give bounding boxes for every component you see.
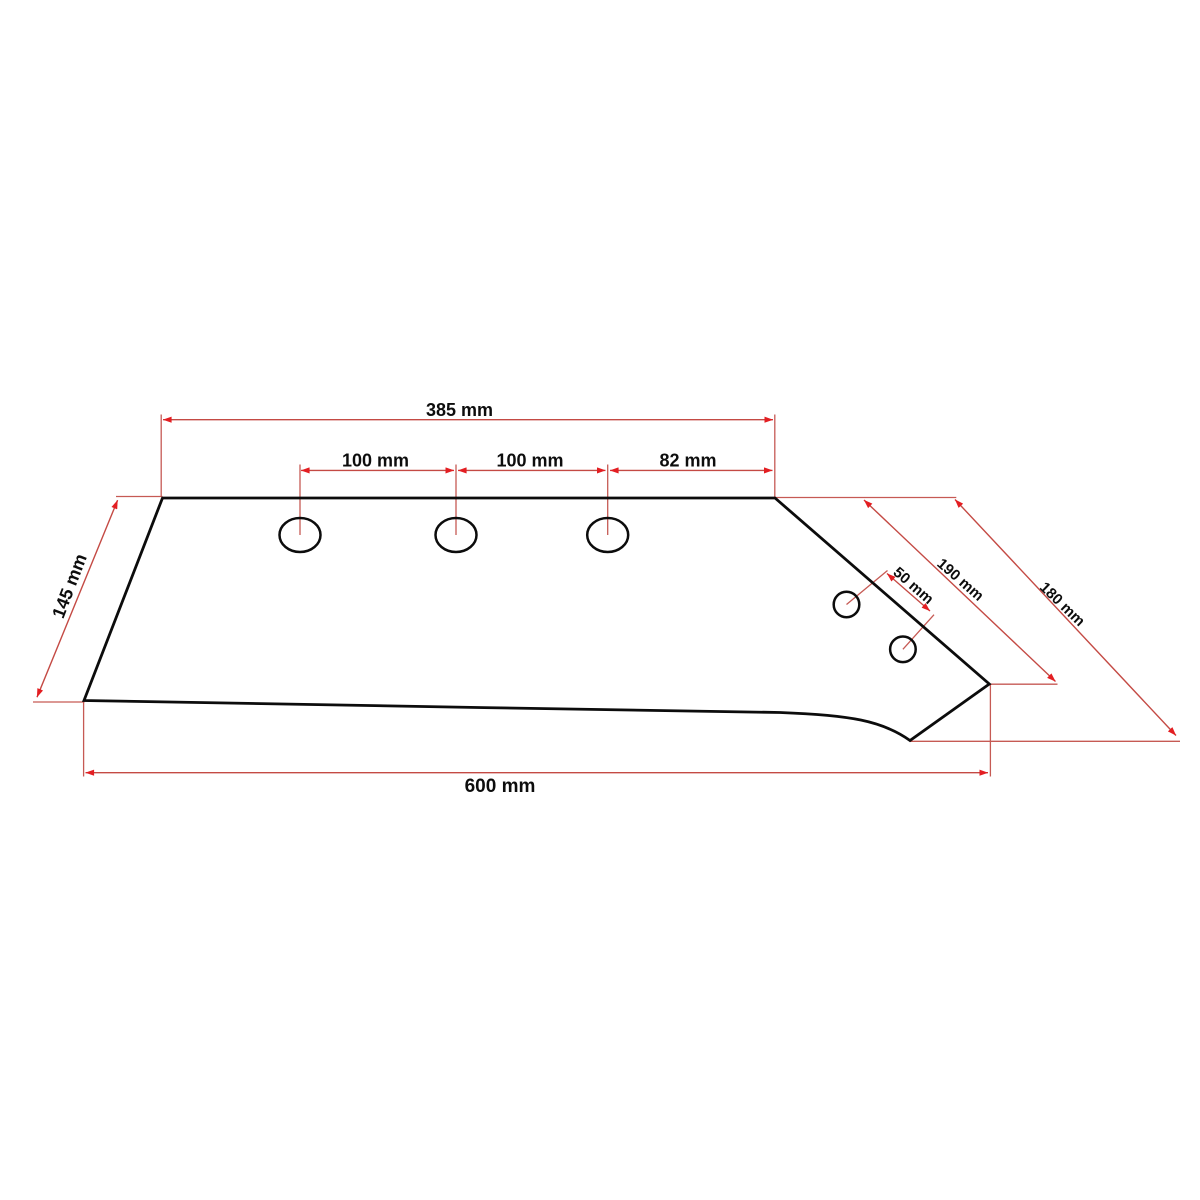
svg-text:180 mm: 180 mm: [1036, 579, 1088, 630]
svg-text:50 mm: 50 mm: [890, 564, 937, 608]
svg-text:385 mm: 385 mm: [426, 400, 493, 420]
svg-text:190 mm: 190 mm: [934, 555, 987, 604]
svg-text:145 mm: 145 mm: [48, 551, 91, 621]
svg-text:100 mm: 100 mm: [496, 451, 563, 471]
svg-text:600 mm: 600 mm: [465, 776, 536, 797]
svg-text:82 mm: 82 mm: [659, 451, 716, 471]
svg-text:100 mm: 100 mm: [342, 451, 409, 471]
